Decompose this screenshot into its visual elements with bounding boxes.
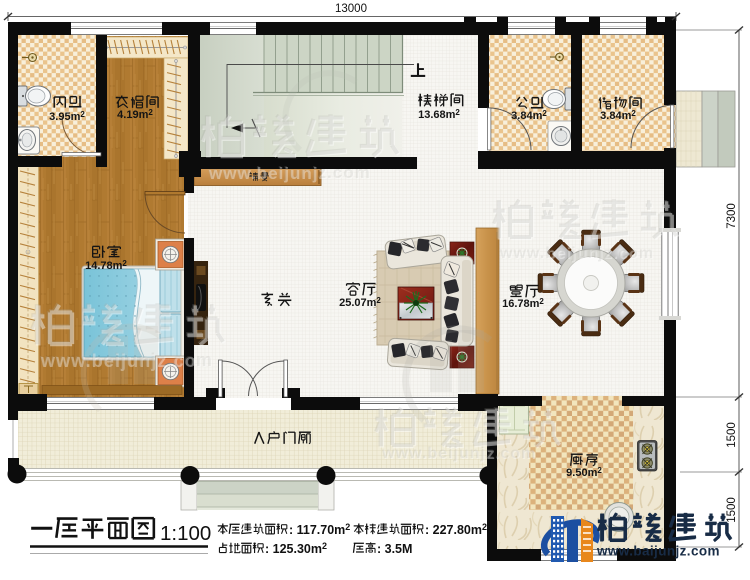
svg-text:: 117.70m2: : 117.70m2 <box>289 522 350 537</box>
svg-text:3.95m2: 3.95m2 <box>49 110 85 123</box>
svg-text:1500: 1500 <box>726 422 738 448</box>
svg-text:1:100: 1:100 <box>160 522 211 545</box>
svg-text:7300: 7300 <box>726 203 738 229</box>
svg-text:www.baijunjz.com: www.baijunjz.com <box>596 544 720 559</box>
svg-text:4.19m2: 4.19m2 <box>117 108 153 121</box>
svg-text:13000: 13000 <box>335 3 367 15</box>
svg-text:www.beijunjz.com: www.beijunjz.com <box>207 163 371 182</box>
svg-text:3.84m2: 3.84m2 <box>600 109 636 122</box>
svg-text:14.78m2: 14.78m2 <box>85 259 127 272</box>
svg-text:16.78m2: 16.78m2 <box>502 297 544 310</box>
svg-text:: 227.80m2: : 227.80m2 <box>425 522 487 537</box>
svg-text:: 125.30m2: : 125.30m2 <box>265 541 327 556</box>
svg-text:www.beijunjz.com: www.beijunjz.com <box>499 245 654 262</box>
svg-text:13.68m2: 13.68m2 <box>418 108 460 121</box>
svg-text:25.07m2: 25.07m2 <box>339 296 381 309</box>
svg-text:9.50m2: 9.50m2 <box>566 466 602 479</box>
svg-text:: 3.5M: : 3.5M <box>377 542 412 556</box>
svg-text:www.beijunjz.com: www.beijunjz.com <box>381 445 536 462</box>
svg-text:1500: 1500 <box>726 497 738 523</box>
svg-text:3.84m2: 3.84m2 <box>511 109 547 122</box>
